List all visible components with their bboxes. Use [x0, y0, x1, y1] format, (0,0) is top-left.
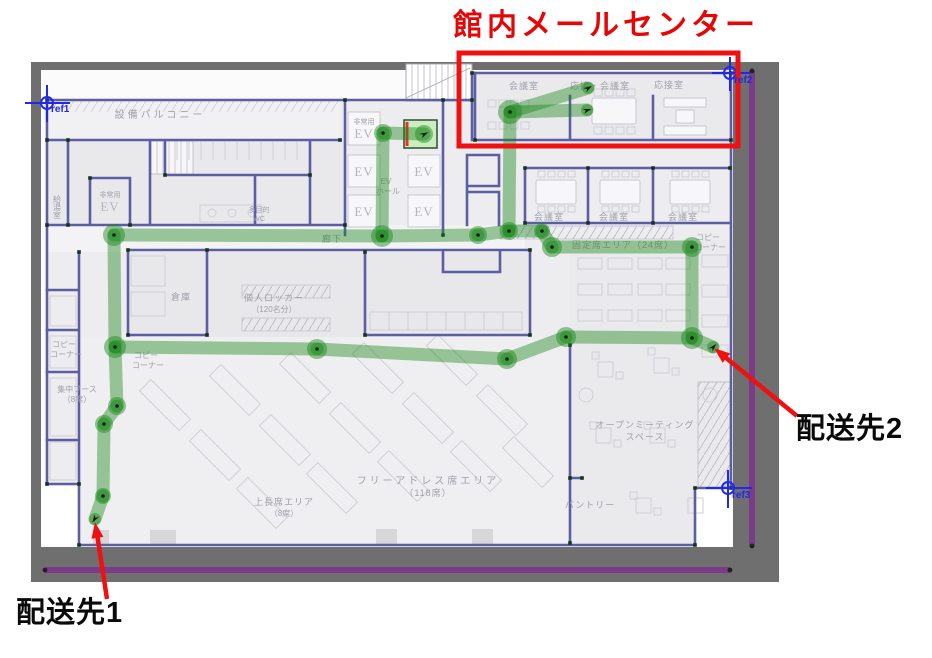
ref3-label: ref3: [732, 491, 750, 502]
destination2-label: 配送先2: [796, 414, 903, 444]
ref2-label: ref2: [734, 76, 752, 87]
floorplan-canvas: 設備バルコニー 非常用 EV 非常用 EV EV EV EV EV EV ホール…: [0, 0, 932, 658]
svg-text:EV: EV: [414, 204, 433, 219]
svg-text:非常用: 非常用: [100, 190, 121, 199]
svg-text:（118席）: （118席）: [404, 487, 451, 498]
svg-text:会議室: 会議室: [534, 211, 564, 222]
svg-text:フリーアドレス席エリア: フリーアドレス席エリア: [357, 474, 500, 487]
svg-text:設備バルコニー: 設備バルコニー: [115, 108, 206, 121]
svg-text:EV: EV: [354, 126, 373, 141]
svg-text:応接室: 応接室: [654, 79, 684, 90]
destination1-label: 配送先1: [16, 598, 123, 628]
svg-text:スペース: スペース: [626, 432, 665, 442]
svg-text:コーナー: コーナー: [50, 350, 82, 359]
svg-text:（8席）: （8席）: [270, 508, 298, 518]
svg-text:EV: EV: [100, 199, 119, 214]
svg-text:オープンミーティング: オープンミーティング: [596, 419, 695, 430]
svg-text:EV: EV: [354, 164, 373, 179]
svg-text:多目的: 多目的: [249, 205, 270, 214]
mail-center-title: 館内メールセンター: [453, 10, 759, 42]
svg-text:EV: EV: [414, 164, 433, 179]
svg-text:（120名分）: （120名分）: [251, 304, 296, 314]
svg-text:個人ロッカー: 個人ロッカー: [244, 292, 304, 303]
svg-text:会議室: 会議室: [509, 80, 539, 91]
svg-text:（8席）: （8席）: [63, 394, 91, 404]
floorplan-screenshot: 設備バルコニー 非常用 EV 非常用 EV EV EV EV EV EV ホール…: [0, 0, 932, 658]
svg-text:会議室: 会議室: [668, 211, 698, 222]
ref1-label: ref1: [51, 105, 69, 116]
svg-text:WC: WC: [253, 216, 265, 223]
svg-text:非常用: 非常用: [354, 117, 375, 126]
svg-text:倉庫: 倉庫: [171, 291, 191, 302]
svg-text:集中ブース: 集中ブース: [57, 384, 97, 394]
svg-text:パントリー: パントリー: [565, 500, 615, 510]
svg-text:会議室: 会議室: [599, 211, 629, 222]
svg-text:コーナー: コーナー: [132, 361, 164, 370]
svg-text:給湯室: 給湯室: [53, 194, 62, 219]
svg-text:EV: EV: [354, 204, 373, 219]
svg-text:コピー: コピー: [52, 340, 76, 349]
svg-text:上長席エリア: 上長席エリア: [254, 496, 314, 507]
